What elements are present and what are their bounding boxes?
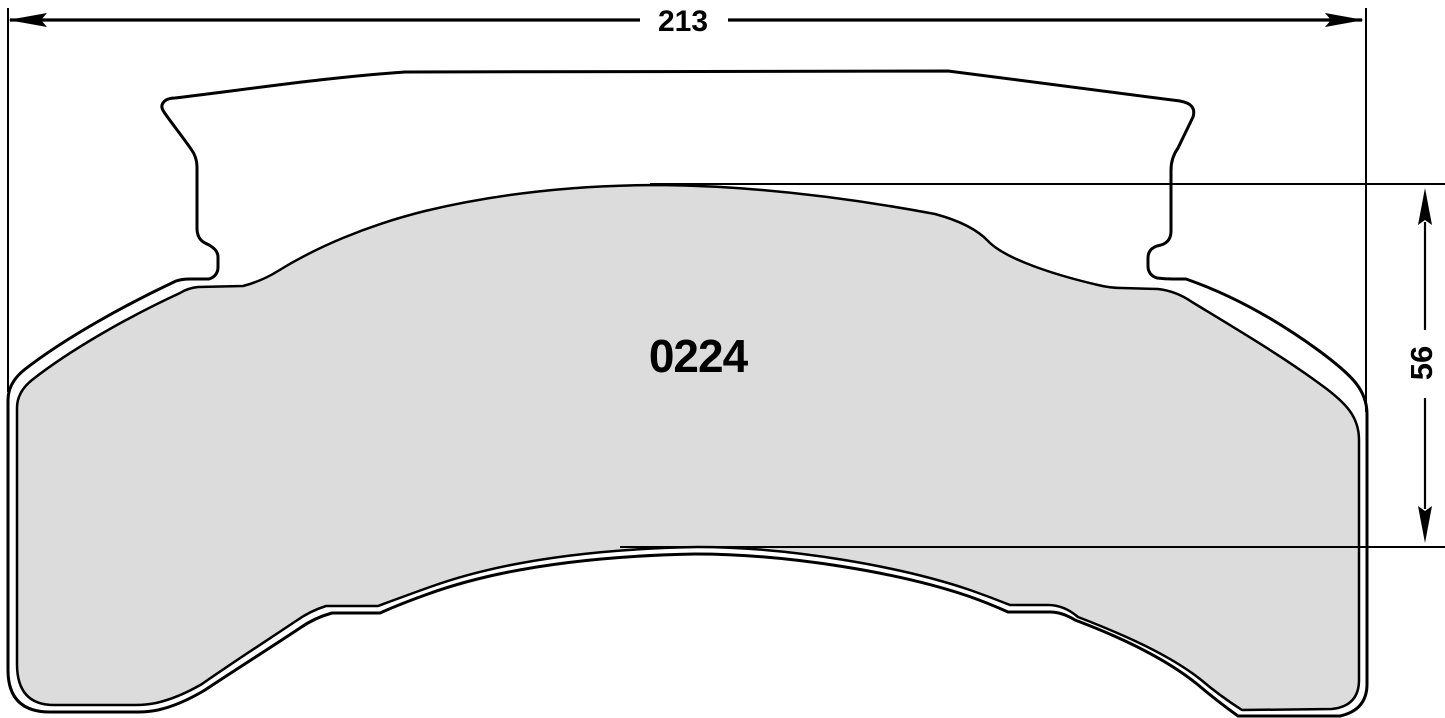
height-dimension-arrowhead-top xyxy=(1418,188,1432,225)
height-dimension-label: 56 xyxy=(1404,346,1439,380)
height-dimension-arrowhead-bottom xyxy=(1418,506,1432,543)
technical-drawing-canvas: 213 56 0224 xyxy=(0,0,1445,718)
width-dimension-label: 213 xyxy=(658,5,708,38)
part-number-label: 0224 xyxy=(649,330,749,382)
brake-pad-drawing: 213 56 0224 xyxy=(0,0,1445,718)
